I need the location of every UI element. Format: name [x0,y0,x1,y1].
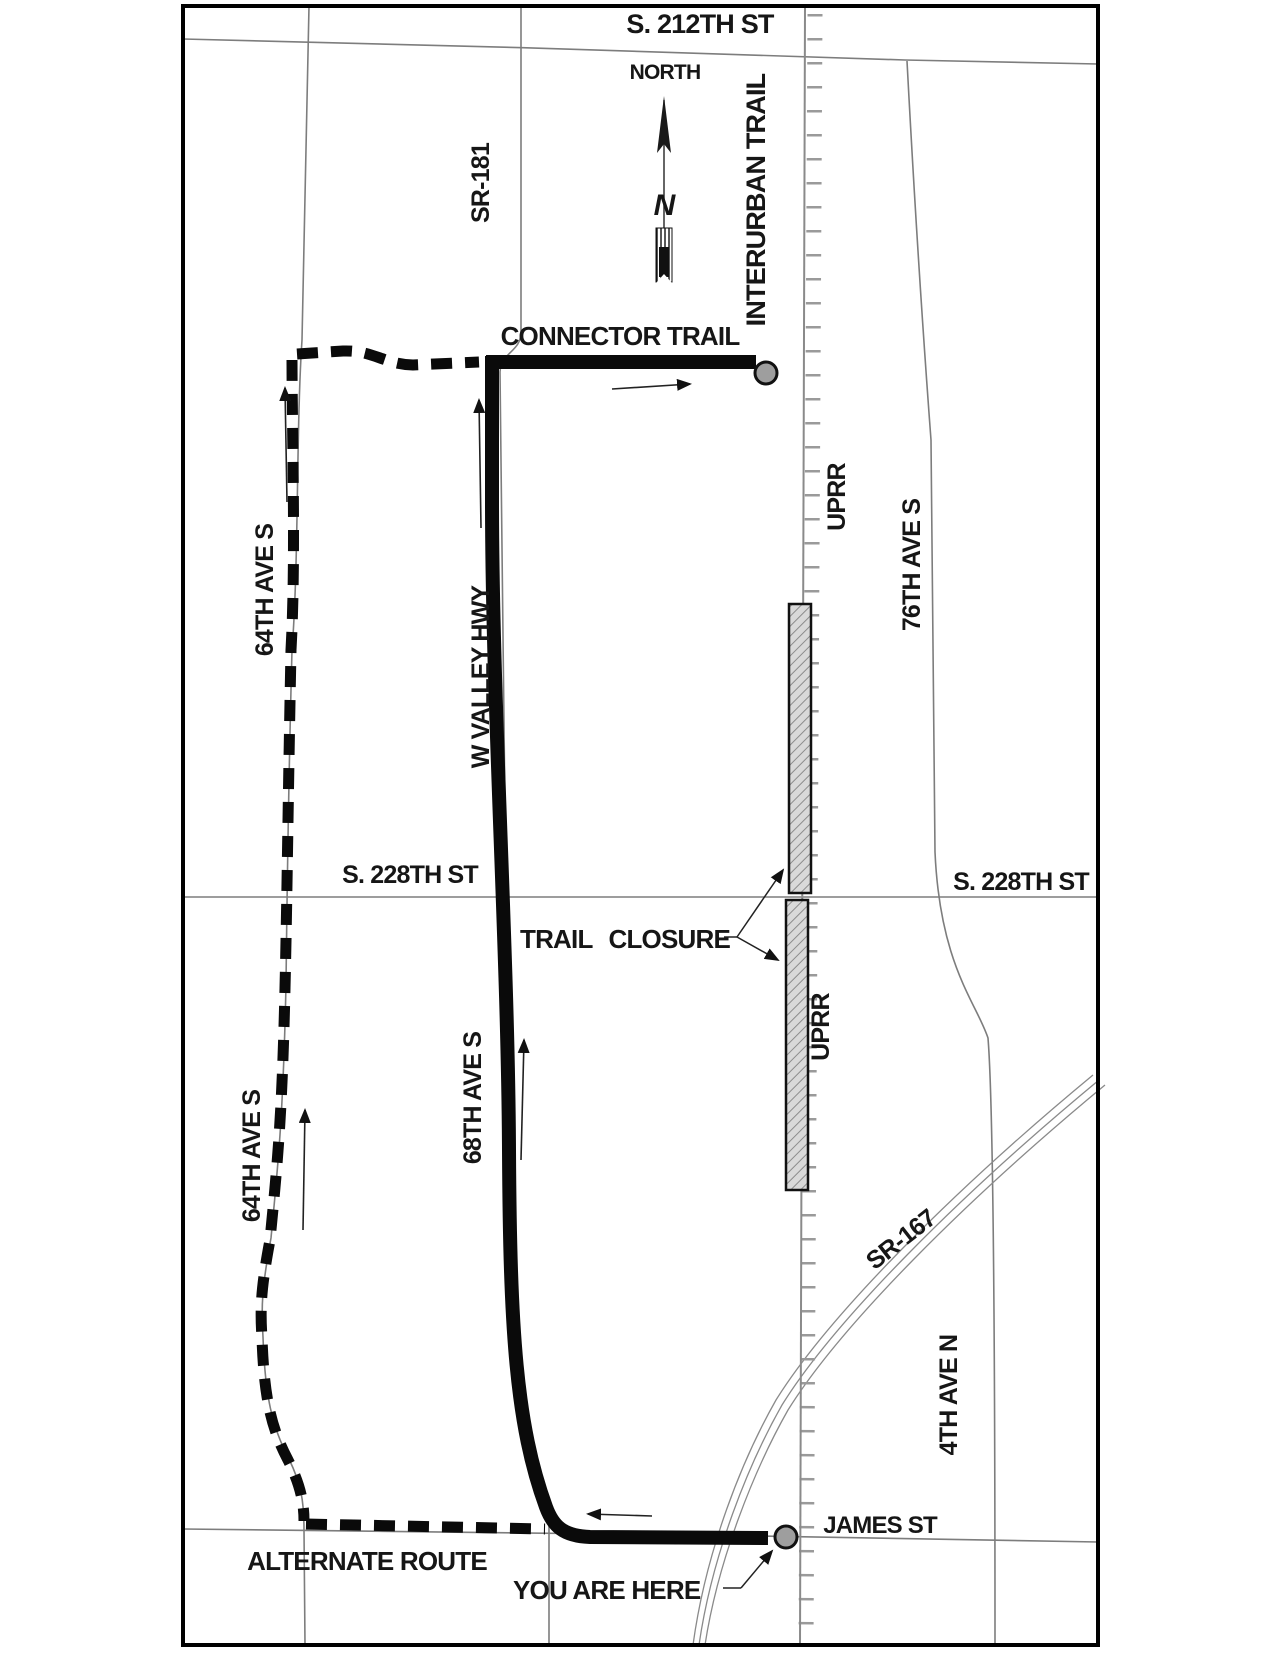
label-64th-ave-s-lower: 64TH AVE S [238,1090,266,1222]
label-you-are-here: YOU ARE HERE [513,1575,701,1605]
label-64th-ave-s-upper: 64TH AVE S [251,524,279,656]
detour-map: N S. 212TH ST NORTH SR-181 INTERURBAN TR… [0,0,1280,1656]
label-w-valley-hwy: W VALLEY HWY [467,585,495,769]
label-76th-ave-s: 76TH AVE S [898,499,926,631]
label-north: NORTH [630,61,701,84]
trail-north-endpoint-marker [755,362,777,384]
trail-closure-segment-north [789,604,811,893]
label-s-228th-st-west: S. 228TH ST [342,861,478,889]
detour-map-page: N S. 212TH ST NORTH SR-181 INTERURBAN TR… [0,0,1280,1656]
label-alternate-route: ALTERNATE ROUTE [247,1546,487,1576]
map-background [0,0,1280,1656]
label-james-st: JAMES ST [823,1512,938,1539]
label-68th-ave-s: 68TH AVE S [459,1032,487,1164]
label-uprr-south: UPRR [807,992,835,1060]
label-interurban-trail: INTERURBAN TRAIL [741,73,771,326]
north-arrow-fletching-band [659,247,669,277]
trail-closure-segment-south [786,900,808,1190]
label-uprr-north: UPRR [823,462,851,530]
you-are-here-marker [775,1526,797,1548]
label-4th-ave-n: 4TH AVE N [935,1335,963,1456]
label-trail-closure: TRAIL CLOSURE [520,924,730,954]
label-sr-181: SR-181 [467,142,495,223]
label-connector-trail: CONNECTOR TRAIL [501,321,741,351]
label-s-228th-st-east: S. 228TH ST [953,868,1089,896]
north-arrow-n-glyph: N [654,189,677,222]
label-s-212th-st: S. 212TH ST [626,9,775,39]
